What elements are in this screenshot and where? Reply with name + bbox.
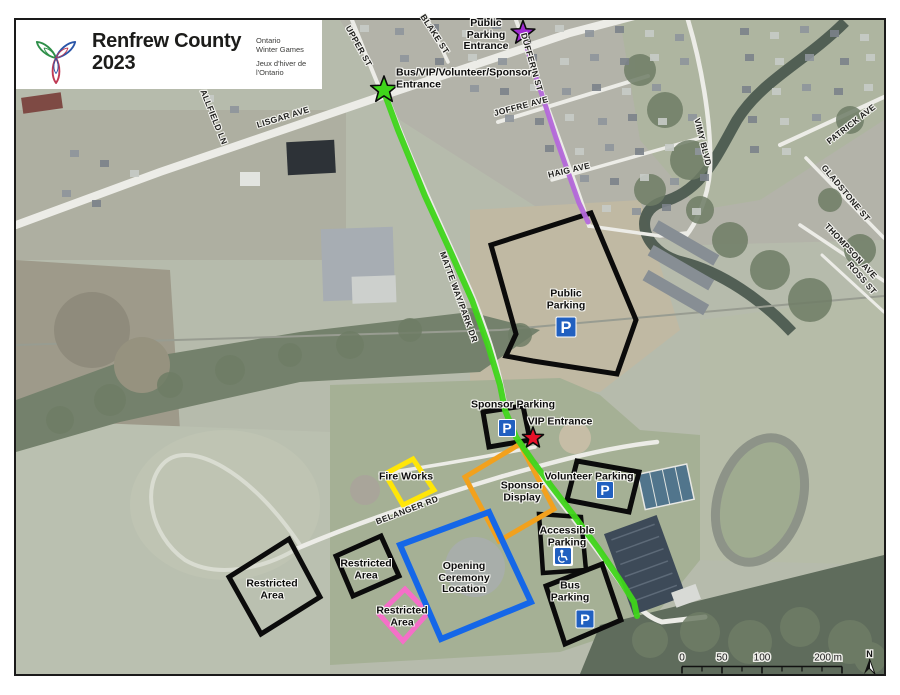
event-title: Renfrew County 2023 [92,30,241,74]
accessible-parking-icon [553,546,573,566]
scale-label: 200 m [814,653,842,664]
parking-letter: P [600,482,609,498]
public-parking-icon: P [556,317,576,337]
north-arrow: N [864,649,875,674]
bus-parking-icon: P [576,610,594,628]
public-parking-route-line [525,40,588,222]
event-logo-box: Renfrew County 2023 Ontario Winter Games… [16,20,322,89]
public-parking-zone [491,213,636,374]
volunteer-parking-icon: P [597,482,614,499]
event-title-line2: 2023 [92,52,241,74]
scale-label: 0 [679,653,685,664]
restricted-area-mid-zone [336,536,399,596]
event-organization: Ontario Winter Games Jeux d'hiver de l'O… [256,37,306,83]
map-stage: PPPP 050100200 m N LISGAR AVEALLFIELD LN… [0,0,900,695]
scale-label: 50 [716,653,728,664]
bus-parking-zone [546,564,621,644]
fire-works-zone [385,459,434,505]
restricted-area-west-zone [229,539,320,634]
north-arrow-right [870,659,876,674]
map-overlay: PPPP 050100200 m N [0,0,900,695]
trillium-logo-icon [28,24,84,86]
north-arrow-left [864,659,870,674]
event-title-line1: Renfrew County [92,30,241,52]
sponsor-parking-icon: P [499,420,516,437]
parking-letter: P [580,612,590,628]
scale-label: 100 [754,653,771,664]
scale-bar: 050100200 m [679,653,842,674]
zones-layer [229,213,639,644]
markers-layer: PPPP [371,21,614,629]
routes-layer [384,40,637,616]
parking-letter: P [502,420,511,436]
north-label: N [866,649,873,659]
org-english: Ontario Winter Games [256,37,306,54]
org-french: Jeux d'hiver de l'Ontario [256,60,306,77]
parking-letter: P [561,319,572,337]
